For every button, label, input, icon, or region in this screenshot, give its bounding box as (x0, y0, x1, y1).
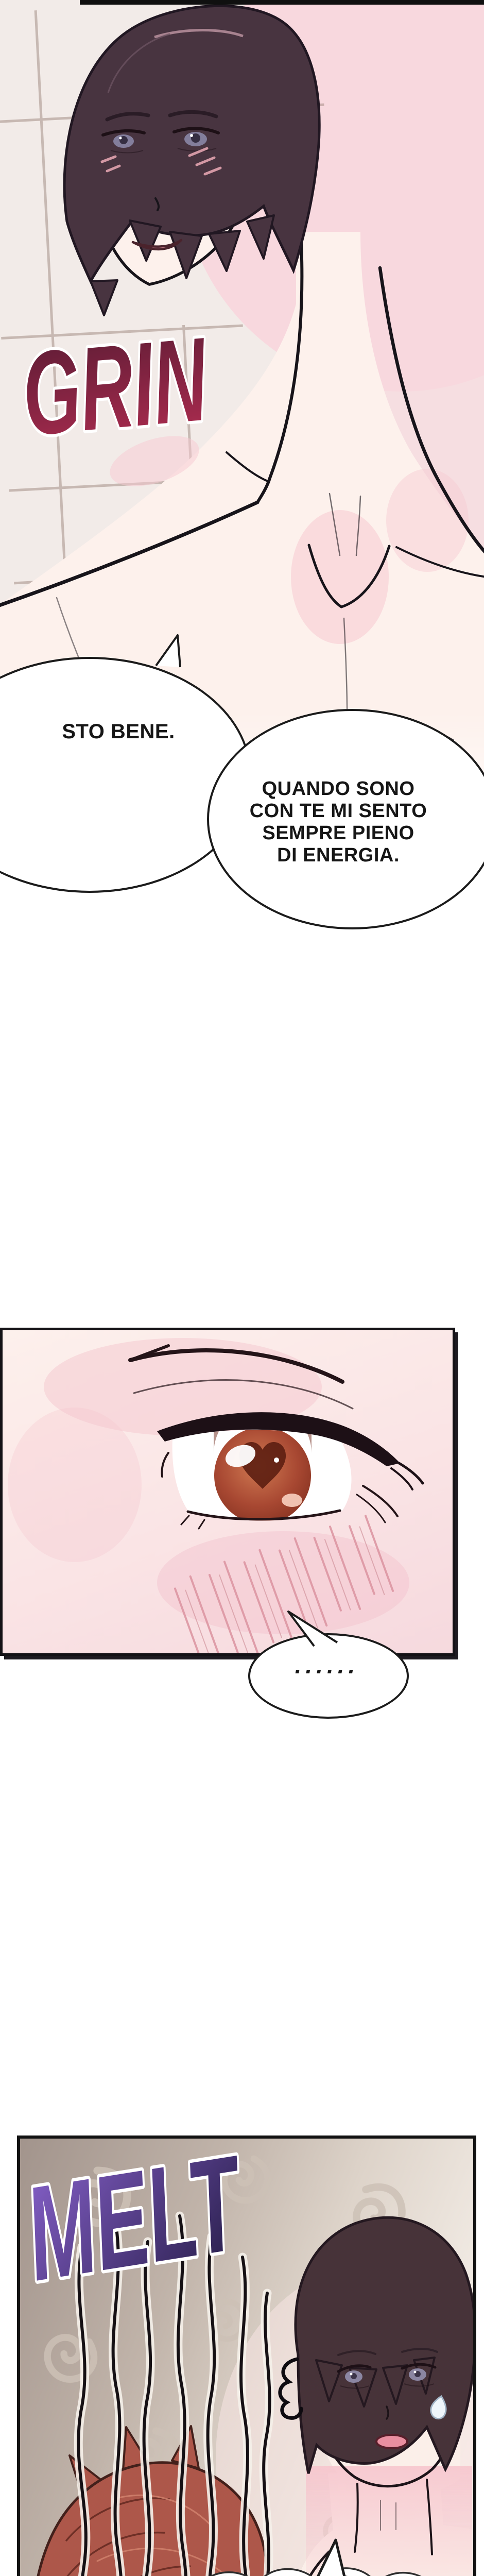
dialog-quando: QUANDO SONO CON TE MI SENTO SEMPRE PIENO… (238, 778, 439, 867)
top-border-bar (80, 0, 484, 5)
speech-bubble-ellipsis-tail (268, 1602, 345, 1654)
webtoon-page: GRIN STO BENE. QUANDO SONO CON TE MI SEN… (0, 0, 484, 2576)
sfx-melt-layer: MELT (17, 2136, 326, 2352)
speech-bubble-stai-tail (301, 2531, 358, 2576)
dialog-sto-bene: STO BENE. (31, 720, 206, 743)
mouth-open (376, 2435, 407, 2448)
dialog-ellipsis: ...... (255, 1651, 399, 1679)
dialog-line: DI ENERGIA. (238, 844, 439, 867)
dialog-line: STO BENE. (31, 720, 206, 743)
shoulder-flush-2 (386, 469, 469, 572)
blush-soft-left (8, 1408, 142, 1562)
panel-eye-closeup (0, 1328, 455, 1656)
sfx-grin: GRIN (18, 313, 213, 461)
dialog-line: ...... (255, 1651, 399, 1679)
speech-bubble-sto-bene-tail (139, 622, 196, 679)
sfx-melt: MELT (17, 2136, 256, 2309)
dialog-line: QUANDO SONO (238, 778, 439, 800)
dialog-line: CON TE MI SENTO (238, 800, 439, 822)
dialog-line: SEMPRE PIENO (238, 822, 439, 844)
